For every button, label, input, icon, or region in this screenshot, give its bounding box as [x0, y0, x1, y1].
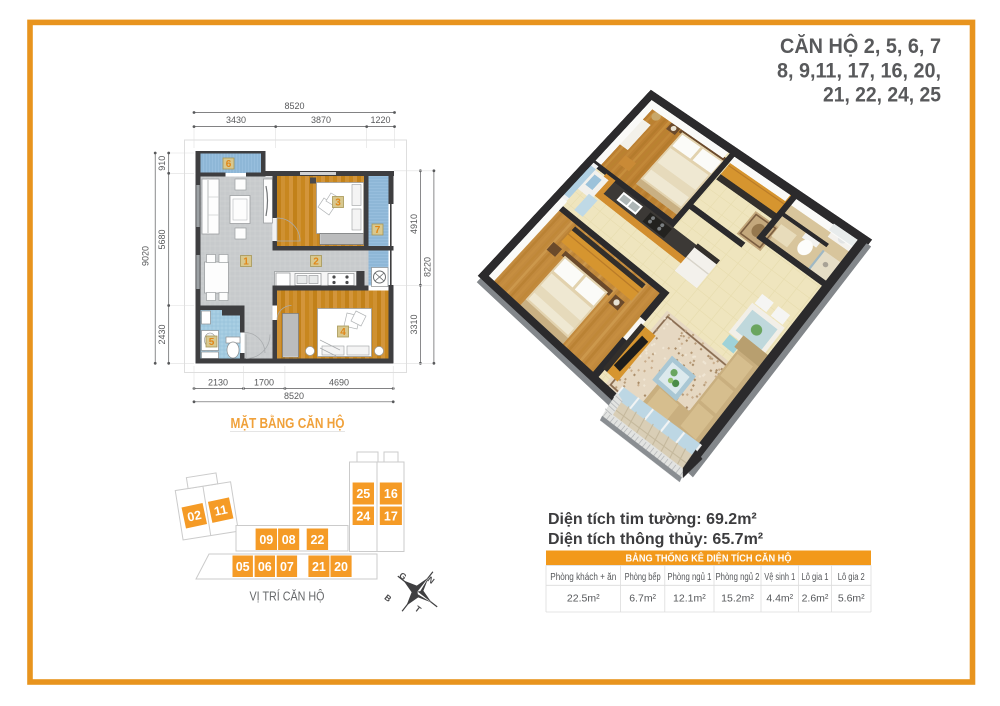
svg-text:21: 21 [312, 560, 326, 574]
svg-text:8520: 8520 [284, 391, 304, 401]
svg-text:06: 06 [258, 560, 272, 574]
svg-text:17: 17 [384, 509, 398, 523]
svg-text:3430: 3430 [226, 115, 246, 125]
svg-text:20: 20 [334, 560, 348, 574]
svg-text:Lô gia 2: Lô gia 2 [838, 572, 865, 583]
svg-text:5: 5 [209, 337, 215, 348]
svg-text:Vệ sinh 1: Vệ sinh 1 [764, 572, 795, 583]
svg-text:2: 2 [313, 257, 319, 268]
svg-text:05: 05 [236, 560, 250, 574]
svg-text:910: 910 [157, 156, 167, 171]
svg-text:MẶT BẰNG CĂN HỘ: MẶT BẰNG CĂN HỘ [231, 414, 345, 432]
svg-text:8520: 8520 [284, 101, 304, 111]
svg-text:9020: 9020 [141, 246, 151, 266]
svg-text:4690: 4690 [329, 378, 349, 388]
svg-text:1: 1 [243, 257, 249, 268]
svg-text:25: 25 [356, 487, 370, 501]
svg-text:2.6m²: 2.6m² [802, 593, 829, 605]
svg-text:3: 3 [335, 198, 341, 209]
svg-text:24: 24 [356, 509, 370, 523]
svg-text:1700: 1700 [254, 378, 274, 388]
svg-text:15.2m²: 15.2m² [721, 593, 754, 605]
svg-text:08: 08 [282, 533, 296, 547]
svg-text:8, 9,11, 17, 16, 20,: 8, 9,11, 17, 16, 20, [777, 60, 941, 83]
svg-text:16: 16 [384, 487, 398, 501]
svg-text:07: 07 [280, 560, 294, 574]
svg-text:21, 22, 24, 25: 21, 22, 24, 25 [823, 84, 941, 107]
svg-text:1220: 1220 [370, 115, 390, 125]
svg-text:5.6m²: 5.6m² [838, 593, 865, 605]
svg-text:09: 09 [259, 533, 273, 547]
svg-text:2430: 2430 [157, 324, 167, 344]
svg-text:VỊ TRÍ CĂN HỘ: VỊ TRÍ CĂN HỘ [250, 589, 325, 604]
svg-text:4.4m²: 4.4m² [766, 593, 793, 605]
svg-text:Lô gia 1: Lô gia 1 [802, 572, 829, 583]
svg-text:CĂN HỘ 2, 5, 6, 7: CĂN HỘ 2, 5, 6, 7 [780, 34, 941, 58]
svg-text:7: 7 [375, 225, 381, 236]
svg-text:4910: 4910 [409, 214, 419, 234]
svg-text:02: 02 [186, 508, 203, 525]
svg-text:4: 4 [340, 327, 346, 338]
svg-text:5680: 5680 [157, 229, 167, 249]
svg-text:2130: 2130 [208, 378, 228, 388]
svg-text:22.5m²: 22.5m² [567, 593, 600, 605]
svg-text:6: 6 [226, 159, 232, 170]
svg-text:3870: 3870 [311, 115, 331, 125]
svg-text:Phòng ngủ 2: Phòng ngủ 2 [716, 571, 760, 583]
svg-text:22: 22 [310, 533, 324, 547]
